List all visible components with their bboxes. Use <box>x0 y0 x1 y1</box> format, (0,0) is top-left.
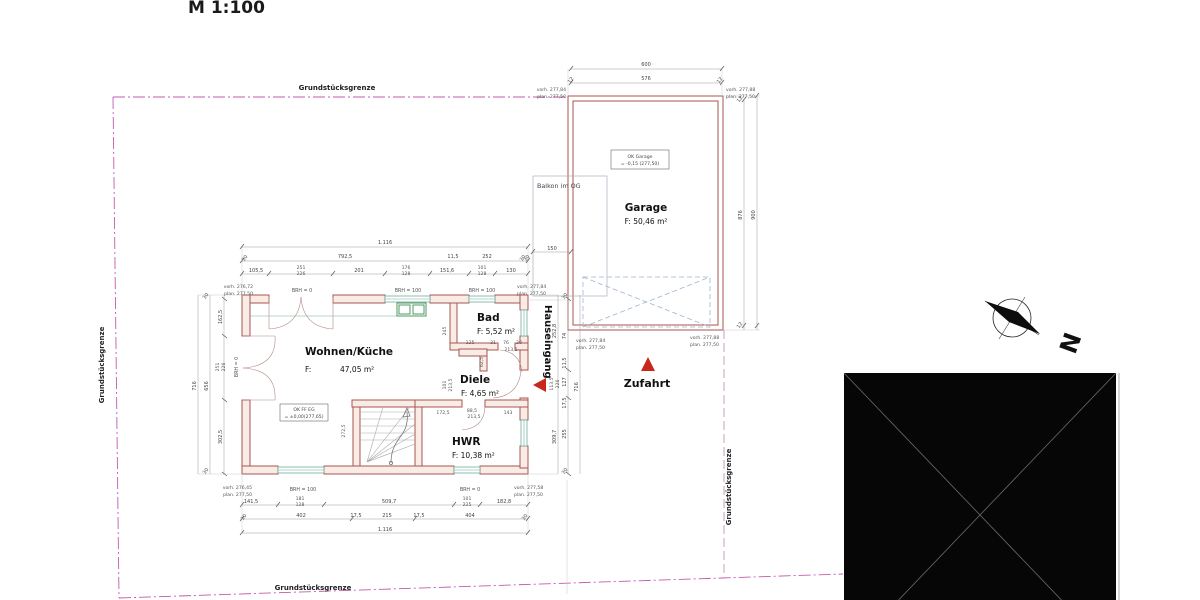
dim-text: 12 <box>736 321 745 330</box>
elevation-text: vorh. 277,58 <box>514 485 543 491</box>
dim-text: 11,5 <box>447 254 458 260</box>
dim-text: 125 <box>466 340 475 346</box>
dim-text: 716 <box>192 381 198 391</box>
wall-segment <box>333 295 385 303</box>
dim-text: 252,8 <box>552 324 558 338</box>
room-labels: Wohnen/Küche F: 47,05 m² Bad F: 5,52 m² … <box>305 312 515 460</box>
door-arc-icon <box>243 336 275 368</box>
garage-door-icon <box>583 277 710 327</box>
dim-text: 76 <box>503 340 509 346</box>
elevation-text: vorh. 276,45 <box>223 485 252 491</box>
dim-text: 1.116 <box>378 240 392 246</box>
dim-text: 302,5 <box>218 430 224 444</box>
room-label-hwr: HWR <box>452 436 480 448</box>
dim-text: 215 <box>382 513 392 519</box>
wall-segment <box>242 400 250 474</box>
dim-text: 130 <box>506 268 516 274</box>
dim-text: 74 <box>562 333 568 339</box>
wall-segment <box>430 295 469 303</box>
brh-label: BRH = 100 <box>469 288 495 294</box>
boundary-label-top: Grundstücksgrenze <box>299 84 376 92</box>
floor-plan-drawing: M 1:100 Grundstücksgrenze Grundstücksgre… <box>0 0 1200 600</box>
entrance-label: Hauseingang <box>542 305 553 379</box>
interior-wall <box>459 349 487 356</box>
dim-text: 251 <box>297 265 306 271</box>
brh-label: BRH = 0 <box>292 288 312 294</box>
dim-text: 402 <box>296 513 306 519</box>
balcony-outline <box>533 176 607 296</box>
dimensions-house-bottom: 141,5 181 128 509,7 101 225 182,8 30 402… <box>240 496 530 533</box>
dim-text: 162,5 <box>218 310 224 324</box>
north-letter: N <box>1053 329 1086 357</box>
dim-text: 172,5 <box>436 410 449 416</box>
room-area-diele: F: 4,65 m² <box>461 389 499 398</box>
dim-text: 12 <box>716 76 725 85</box>
room-label-diele: Diele <box>460 374 490 386</box>
floor-level-line2: = ±0,00(277,65) <box>284 414 323 420</box>
redacted-titleblock <box>844 373 1119 600</box>
driveway-label: Zufahrt <box>624 377 671 390</box>
dim-text: 309,7 <box>552 430 558 444</box>
driveway-arrow-icon <box>641 357 655 371</box>
boundary-label-left: Grundstücksgrenze <box>98 326 106 403</box>
stair-walkline <box>391 412 407 463</box>
scale-title: M 1:100 <box>188 0 265 18</box>
brh-label: BRH = 100 <box>395 288 421 294</box>
kitchen-sink-icon <box>397 303 426 316</box>
dim-text: 251 <box>215 363 221 372</box>
dim-text: 226 <box>297 271 306 277</box>
elevation-text: plan. 277,50 <box>537 94 566 100</box>
dim-text: 143 <box>504 410 513 416</box>
dim-text: 30 <box>202 292 211 301</box>
balcony-label: Balkon im OG <box>537 182 581 190</box>
elevation-text: vorh. 277,88 <box>690 335 719 341</box>
interior-wall <box>353 407 360 466</box>
dim-text: 88,5 <box>467 408 477 414</box>
elevation-text: plan. 277,50 <box>224 291 253 297</box>
floor-level-line1: OK FF EG <box>293 407 315 413</box>
dim-text: 128 <box>478 271 487 277</box>
dim-text: 404 <box>465 513 475 519</box>
door-arc-icon <box>500 350 522 372</box>
dim-text: 176 <box>402 265 411 271</box>
boundary-line-bottom <box>119 574 843 598</box>
black-placeholder-box <box>844 373 1116 600</box>
interior-wall <box>450 303 457 348</box>
dim-text: 151,6 <box>440 268 454 274</box>
brh-label: BRH = 0 <box>234 357 240 377</box>
wall-segment <box>242 295 250 336</box>
room-area-hwr: F: 10,38 m² <box>452 451 495 460</box>
dim-text: 255 <box>562 429 568 439</box>
dim-text: 792,5 <box>338 254 352 260</box>
dim-text: 101 <box>442 381 448 390</box>
balcony: Balkon im OG <box>533 176 607 296</box>
dim-text: 17,5 <box>350 513 361 519</box>
interior-wall <box>352 400 415 407</box>
elevation-text: vorh. 277,84 <box>537 87 566 93</box>
dim-text: 600 <box>641 62 651 68</box>
dim-text: 20 <box>516 340 522 346</box>
entrance-arrow-icon <box>533 378 546 392</box>
dim-text: 150 <box>547 246 557 252</box>
dim-text: 509,7 <box>382 499 396 505</box>
boundary-label-right: Grundstücksgrenze <box>725 448 733 525</box>
wall-segment <box>324 466 454 474</box>
dim-text: 62,5 <box>479 357 485 367</box>
staircase <box>360 407 415 465</box>
dim-text: 105,5 <box>249 268 263 274</box>
dim-text: 1.116 <box>378 527 392 533</box>
room-area-bad: F: 5,52 m² <box>477 327 515 336</box>
dim-text: 226 <box>221 363 227 372</box>
dim-text: 182,8 <box>497 499 511 505</box>
dim-text: 716 <box>574 382 580 392</box>
elevation-text: plan. 277,50 <box>690 342 719 348</box>
interior-wall <box>415 407 422 466</box>
dim-text: 128 <box>402 271 411 277</box>
dim-text: 128 <box>296 502 305 508</box>
room-label-wohnen: Wohnen/Küche <box>305 346 393 358</box>
dim-text: 213,5 <box>467 414 480 420</box>
boundary-line-left <box>113 97 119 598</box>
elevation-text: vorh. 277,84 <box>576 338 605 344</box>
elevation-text: vorh. 276,72 <box>224 284 253 290</box>
wall-segment <box>242 466 278 474</box>
elevation-text: plan. 277,50 <box>514 492 543 498</box>
dim-text: 141,5 <box>244 499 258 505</box>
garage-level-line1: OK Garage <box>628 154 653 160</box>
door-arc-icon <box>301 297 333 329</box>
dim-text: 101 <box>463 496 472 502</box>
dim-text: 226 <box>555 380 561 389</box>
dimensions-garage: 600 12 576 12 876 900 12 12 150 30 <box>523 62 757 330</box>
elevation-text: plan. 277,50 <box>223 492 252 498</box>
elevation-text: vorh. 277,88 <box>726 87 755 93</box>
garage-room-label: Garage <box>625 202 668 214</box>
dim-text: 17,5 <box>413 513 424 519</box>
elevation-text: plan. 277,50 <box>517 291 546 297</box>
door-arc-icon <box>243 368 275 400</box>
interior-wall <box>485 400 528 407</box>
dim-text: 181 <box>296 496 305 502</box>
brh-label: BRH = 0 <box>460 487 480 493</box>
elevation-text: plan. 277,50 <box>726 94 755 100</box>
dim-text: 31 <box>490 340 496 346</box>
door-arc-icon <box>269 297 301 329</box>
dim-text: 101 <box>478 265 487 271</box>
dim-text: 576 <box>641 76 651 82</box>
elevation-text: vorh. 277,84 <box>517 284 546 290</box>
dim-text: 213,5 <box>504 347 517 353</box>
garage-level-line2: = -0,15 (277,50) <box>621 161 660 167</box>
dimensions-interior: 245 125 31 76 20 213,5 62,5 101 213,5 17… <box>341 327 522 438</box>
dim-text: 11,5 <box>562 357 568 368</box>
dimensions-house-left: 716 656 30 162,5 251 226 302,5 30 BRH = … <box>192 292 240 476</box>
boundary-label-bottom: Grundstücksgrenze <box>275 584 352 592</box>
dim-text: 252 <box>482 254 492 260</box>
wall-segment <box>520 446 528 468</box>
dim-text: 876 <box>738 210 744 220</box>
brh-label: BRH = 100 <box>290 487 316 493</box>
dim-text: 30 <box>240 513 249 522</box>
dim-text: 127 <box>562 377 568 387</box>
dim-text: 225 <box>463 502 472 508</box>
dim-text: 213,5 <box>448 378 454 391</box>
dim-text: 900 <box>751 210 757 220</box>
room-area-wohnen: 47,05 m² <box>340 365 374 374</box>
dim-text: 245 <box>442 327 448 336</box>
room-area-f: F: <box>305 365 311 374</box>
dim-text: 17,5 <box>562 397 568 408</box>
garage-room-area: F: 50,46 m² <box>625 217 668 226</box>
dimensions-house-top: 1.116 30 792,5 11,5 252 30 105,5 251 226… <box>241 240 528 277</box>
dim-text: 201 <box>354 268 364 274</box>
dim-text: 272,5 <box>341 424 347 437</box>
interior-wall <box>413 400 462 407</box>
dim-text: 30 <box>202 467 211 476</box>
dim-text: 656 <box>204 381 210 391</box>
garage: OK Garage = -0,15 (277,50) Garage F: 50,… <box>568 96 723 330</box>
wall-segment <box>520 295 528 310</box>
room-label-bad: Bad <box>477 312 500 324</box>
north-compass-icon: N <box>985 297 1086 357</box>
elevation-text: plan. 277,50 <box>576 345 605 351</box>
floor-plan-sheet: M 1:100 Grundstücksgrenze Grundstücksgre… <box>0 0 1200 600</box>
stair-walkline-arrow <box>403 408 410 417</box>
dim-text: 113,5 <box>549 377 555 390</box>
